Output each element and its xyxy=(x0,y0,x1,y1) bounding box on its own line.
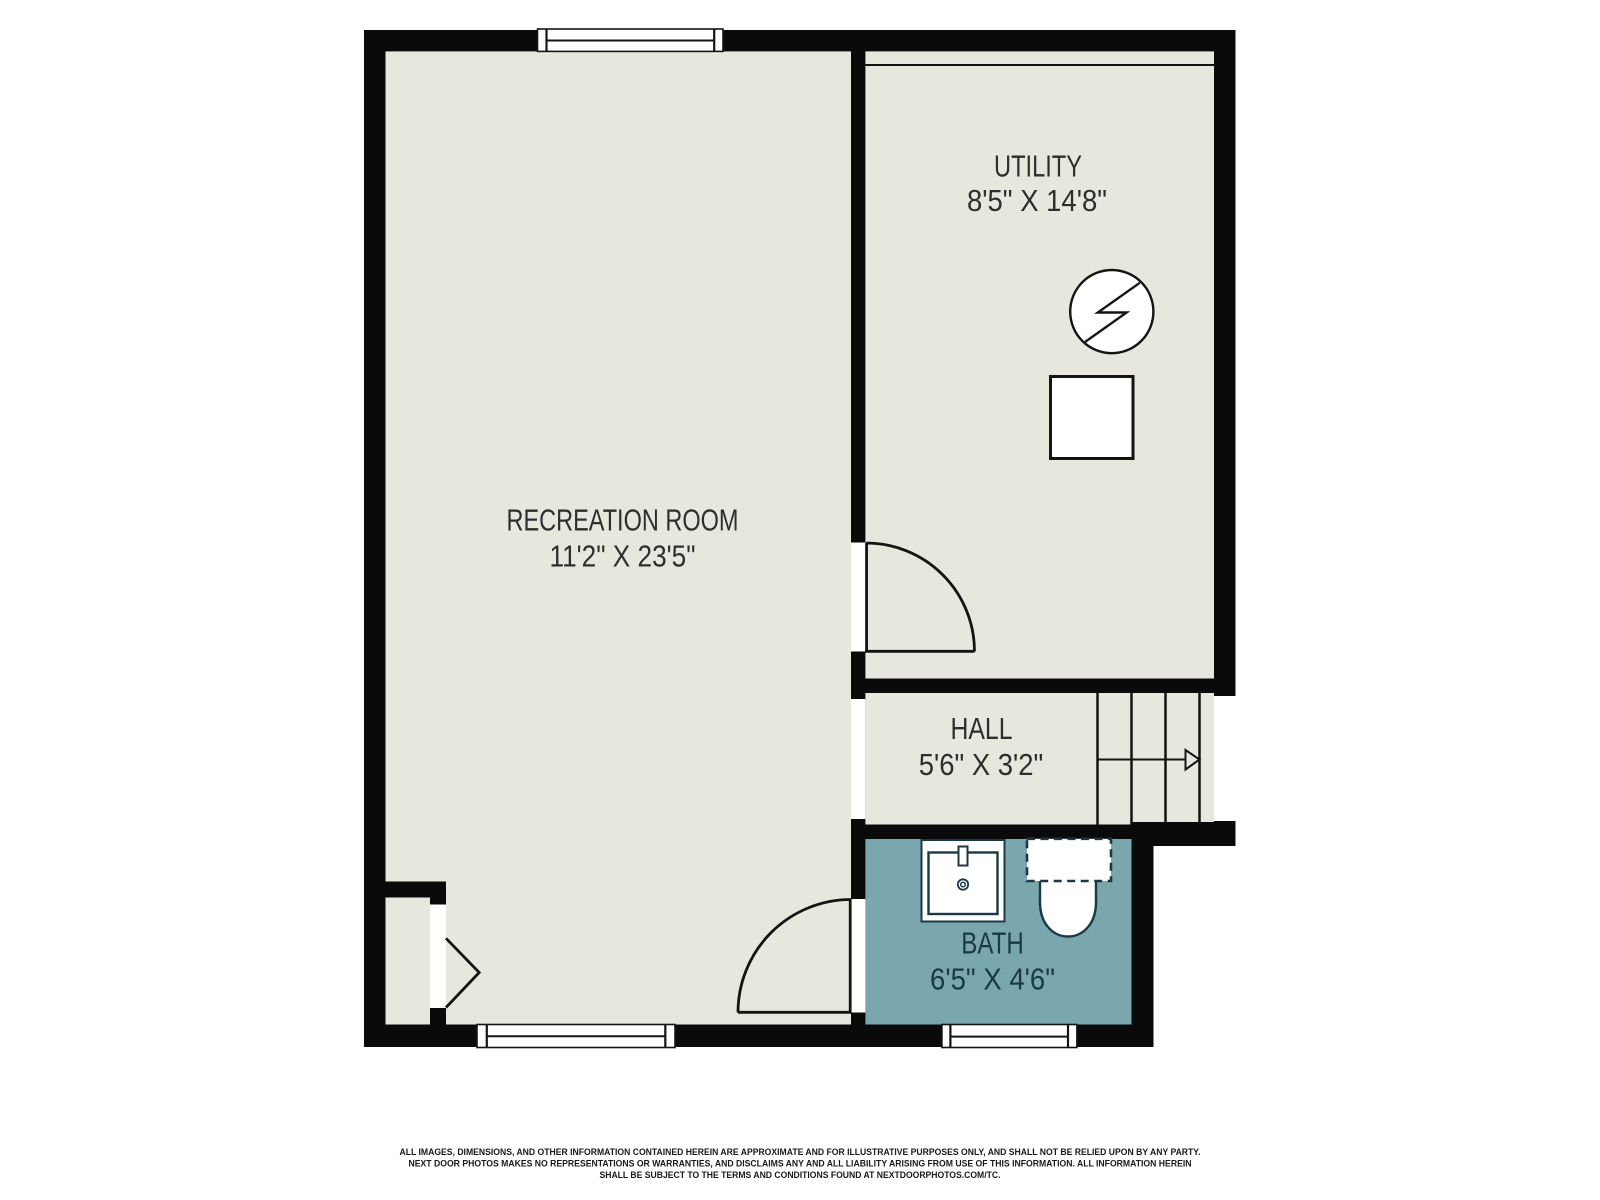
svg-text:BATH: BATH xyxy=(961,926,1024,961)
svg-text:11'2" X 23'5": 11'2" X 23'5" xyxy=(550,539,696,574)
svg-text:ALL IMAGES, DIMENSIONS, AND OT: ALL IMAGES, DIMENSIONS, AND OTHER INFORM… xyxy=(400,1147,1201,1157)
svg-text:5'6" X 3'2": 5'6" X 3'2" xyxy=(919,747,1044,782)
svg-text:8'5" X 14'8": 8'5" X 14'8" xyxy=(967,183,1107,218)
svg-text:SHALL BE SUBJECT TO THE TERMS: SHALL BE SUBJECT TO THE TERMS AND CONDIT… xyxy=(600,1170,1001,1180)
svg-text:HALL: HALL xyxy=(951,711,1013,746)
svg-text:6'5" X 4'6": 6'5" X 4'6" xyxy=(930,962,1055,997)
svg-text:NEXT DOOR PHOTOS MAKES NO REPR: NEXT DOOR PHOTOS MAKES NO REPRESENTATION… xyxy=(409,1159,1192,1169)
svg-text:UTILITY: UTILITY xyxy=(994,149,1082,184)
svg-text:RECREATION ROOM: RECREATION ROOM xyxy=(507,503,739,538)
